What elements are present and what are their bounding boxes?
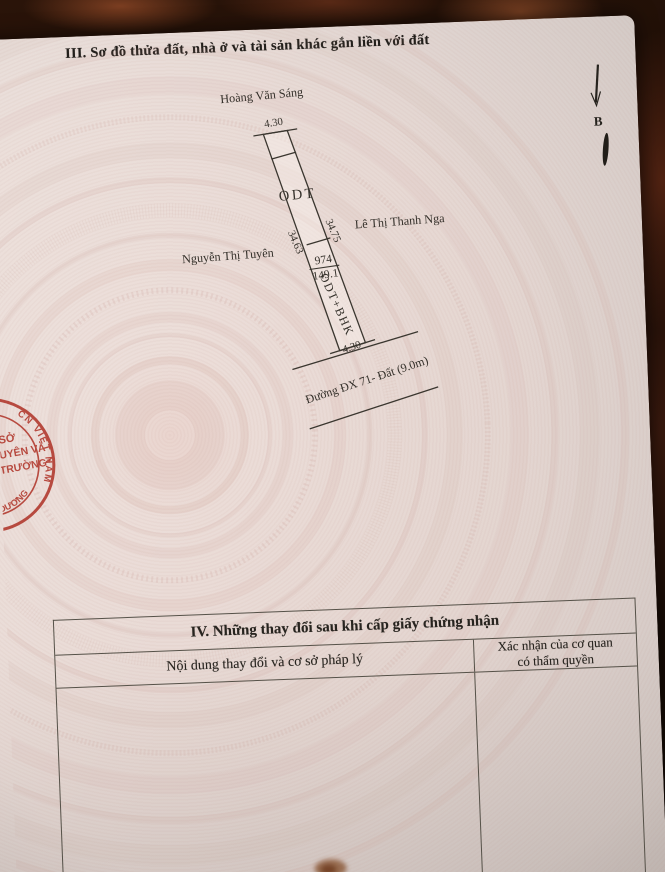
section4-table: IV. Những thay đổi sau khi cấp giấy chứn… [53, 597, 651, 872]
north-arrow-tail [602, 133, 610, 166]
cell-content-empty [56, 673, 487, 872]
neighbor-left-label: Nguyễn Thị Tuyên [182, 246, 275, 267]
north-arrow: B [590, 64, 611, 166]
neighbor-right-label: Lê Thị Thanh Nga [354, 211, 445, 232]
page-content: III. Sơ đồ thửa đất, nhà ở và tài sản kh… [0, 15, 665, 872]
table-body-row [56, 666, 650, 872]
zone-upper-label: ODT [278, 185, 317, 204]
cell-confirmation-empty [474, 666, 650, 872]
stamp-line1: SỞ [0, 431, 17, 447]
dimension-top: 4.30 [263, 116, 284, 131]
certificate-page: III. Sơ đồ thửa đất, nhà ở và tài sản kh… [0, 15, 665, 872]
photo-frame: III. Sơ đồ thửa đất, nhà ở và tài sản kh… [0, 0, 665, 872]
column-header-confirmation: Xác nhận của cơ quan có thẩm quyền [473, 633, 637, 671]
parcel-number: 974 [314, 253, 333, 267]
north-label: B [593, 113, 603, 128]
column-header-confirmation-line2: có thẩm quyền [517, 651, 594, 670]
